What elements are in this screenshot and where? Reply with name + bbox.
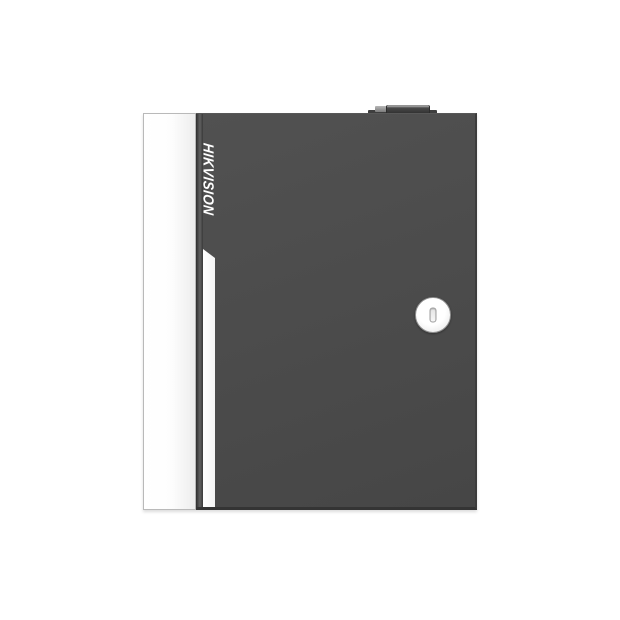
front-door: HIKVISION — [196, 113, 477, 510]
accent-stripe — [203, 249, 215, 507]
brand-logo: HIKVISION — [200, 142, 217, 216]
device-enclosure: HIKVISION — [143, 113, 477, 510]
side-panel — [143, 113, 196, 510]
keyhole-icon — [430, 308, 437, 323]
product-photo: HIKVISION — [0, 0, 620, 620]
door-lock — [415, 297, 451, 333]
